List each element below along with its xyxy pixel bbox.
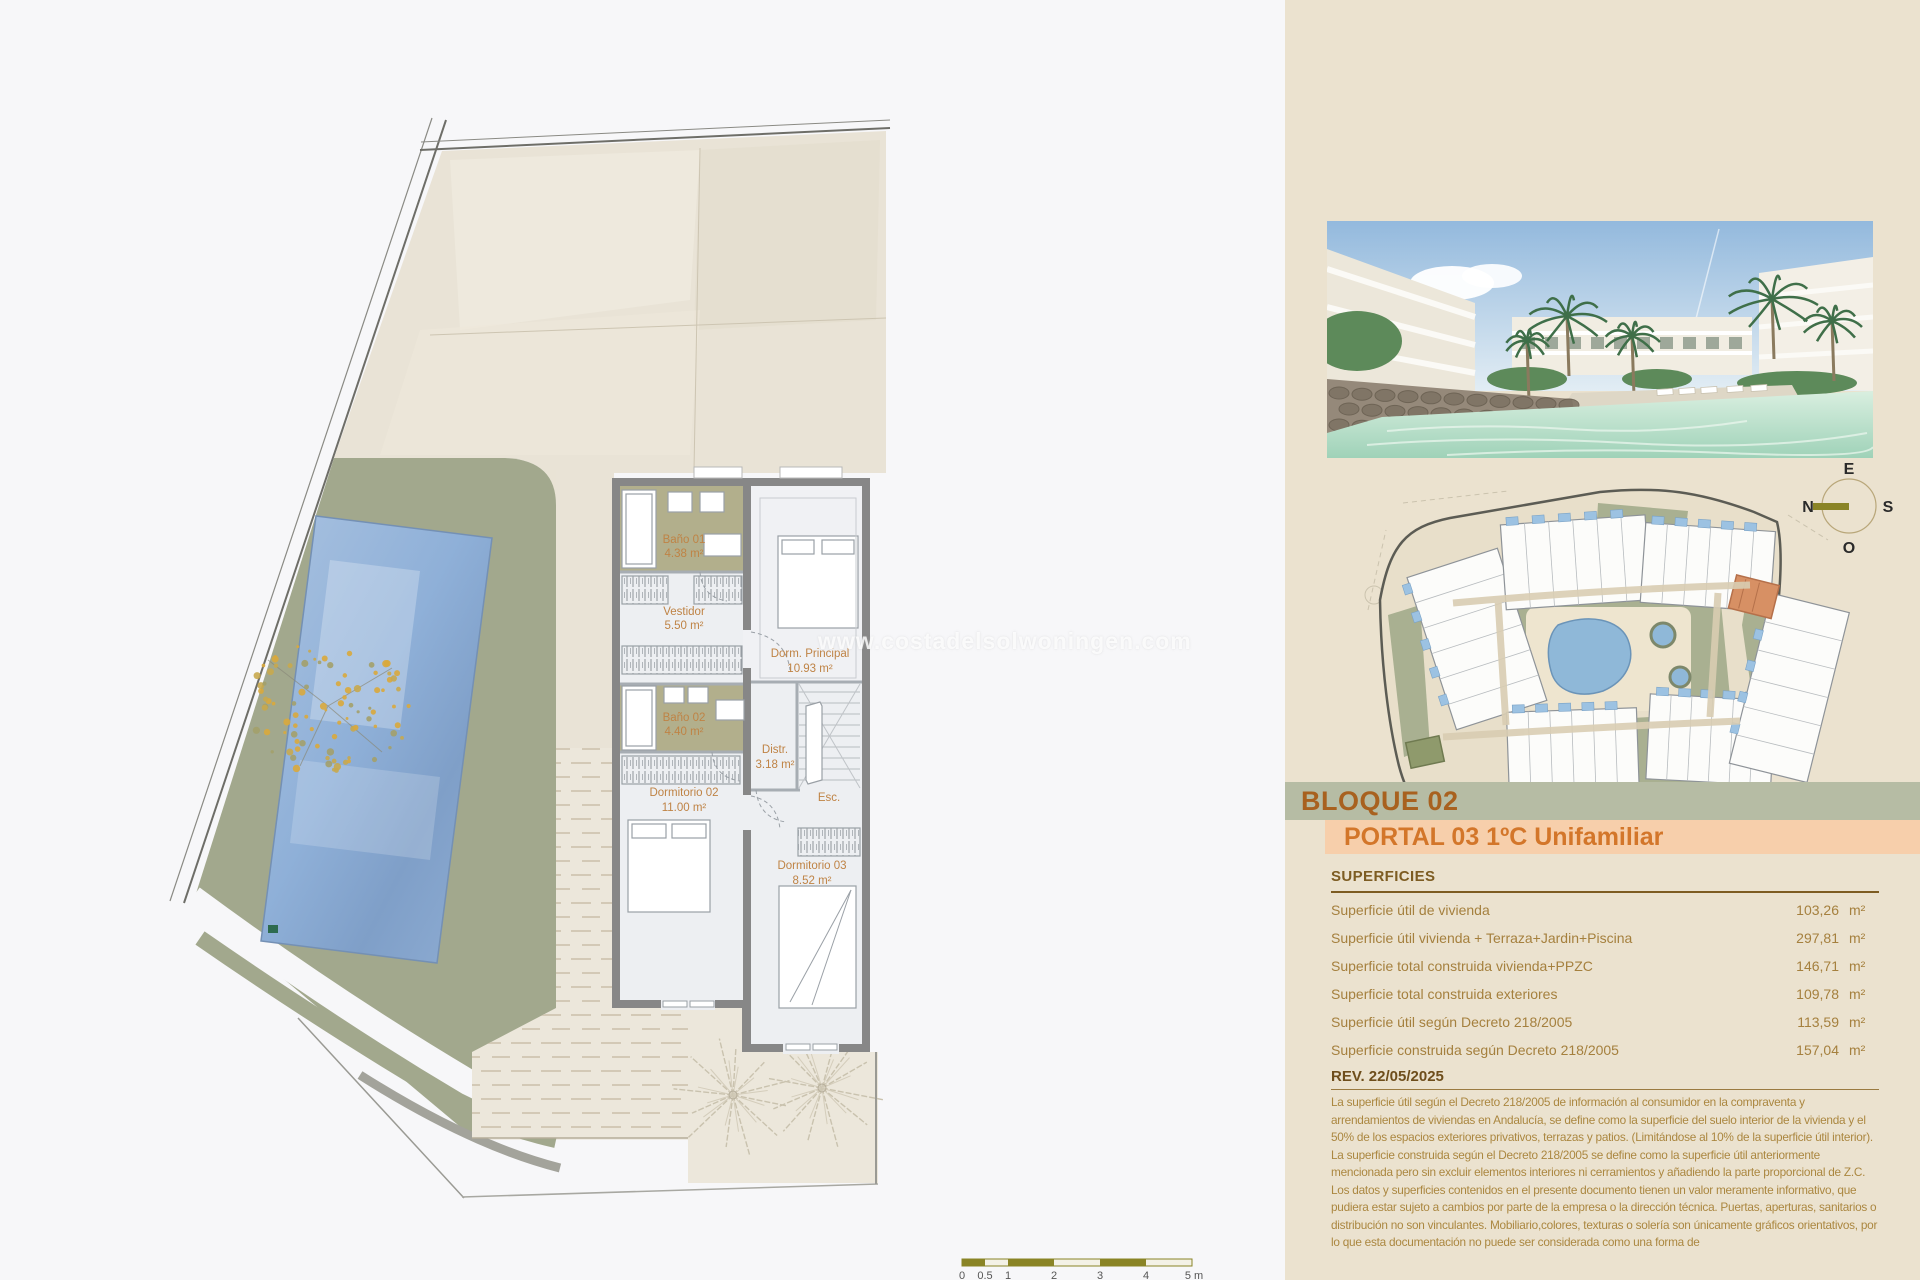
table-row: Superficie total construida exteriores 1… <box>1331 980 1879 1008</box>
info-panel: E S O N <box>1285 0 1920 1280</box>
legal-paragraph: La superficie útil según el Decreto 218/… <box>1331 1094 1879 1147</box>
watermark: www.costadelsolwoningen.com <box>818 628 1118 655</box>
svg-text:0: 0 <box>959 1270 965 1280</box>
superficies-table: Superficie útil de vivienda 103,26 m² Su… <box>1331 896 1879 1064</box>
svg-text:5.50 m²: 5.50 m² <box>665 620 704 632</box>
room-label-bano02: Baño 02 <box>663 712 706 724</box>
svg-text:4: 4 <box>1143 1270 1149 1280</box>
compass-e: E <box>1844 461 1855 478</box>
svg-text:0.5: 0.5 <box>977 1270 992 1280</box>
room-label-bano01: Baño 01 <box>663 534 706 546</box>
revision-section: REV. 22/05/2025 La superficie útil según… <box>1331 1068 1879 1252</box>
room-label-vestidor: Vestidor <box>663 606 705 618</box>
room-label-esc: Esc. <box>818 792 840 804</box>
svg-text:3.18 m²: 3.18 m² <box>756 759 795 771</box>
table-row: Superficie construida según Decreto 218/… <box>1331 1036 1879 1064</box>
room-label-distr: Distr. <box>762 744 788 756</box>
portal-header: PORTAL 03 1ºC Unifamiliar <box>1325 820 1920 854</box>
compass-s: S <box>1883 499 1894 516</box>
legal-paragraph: La superficie construida según el Decret… <box>1331 1147 1879 1182</box>
table-row: Superficie útil vivienda + Terraza+Jardi… <box>1331 924 1879 952</box>
svg-text:1: 1 <box>1005 1270 1011 1280</box>
room-label-dorm03: Dormitorio 03 <box>777 860 846 872</box>
revision-heading: REV. 22/05/2025 <box>1331 1068 1879 1090</box>
bloque-title: BLOQUE 02 <box>1301 786 1459 817</box>
svg-text:5 m: 5 m <box>1185 1270 1203 1280</box>
bloque-header: BLOQUE 02 <box>1285 782 1920 820</box>
brochure-page: Baño 01 4.38 m² Vestidor 5.50 m² Dorm. P… <box>0 0 1920 1280</box>
svg-text:3: 3 <box>1097 1270 1103 1280</box>
portal-title: PORTAL 03 1ºC Unifamiliar <box>1344 823 1663 852</box>
room-label-dorm02: Dormitorio 02 <box>649 787 718 799</box>
table-row: Superficie útil de vivienda 103,26 m² <box>1331 896 1879 924</box>
floor-plan-page: Baño 01 4.38 m² Vestidor 5.50 m² Dorm. P… <box>0 0 1285 1280</box>
house: Baño 01 4.38 m² Vestidor 5.50 m² Dorm. P… <box>612 467 870 1054</box>
svg-text:11.00 m²: 11.00 m² <box>662 802 707 814</box>
superficies-heading: SUPERFICIES <box>1331 868 1879 893</box>
legal-paragraph: Los datos y superficies contenidos en el… <box>1331 1182 1879 1252</box>
svg-text:10.93 m²: 10.93 m² <box>787 663 833 675</box>
svg-text:4.38 m²: 4.38 m² <box>665 548 704 560</box>
table-row: Superficie útil según Decreto 218/2005 1… <box>1331 1008 1879 1036</box>
scale-bar: 0 0.5 1 2 3 4 5 m <box>959 1259 1203 1280</box>
project-photo <box>1327 221 1873 458</box>
svg-text:4.40 m²: 4.40 m² <box>665 726 704 738</box>
table-row: Superficie total construida vivienda+PPZ… <box>1331 952 1879 980</box>
svg-text:2: 2 <box>1051 1270 1057 1280</box>
svg-text:8.52 m²: 8.52 m² <box>793 875 832 887</box>
superficies-section: SUPERFICIES Superficie útil de vivienda … <box>1331 868 1879 1064</box>
